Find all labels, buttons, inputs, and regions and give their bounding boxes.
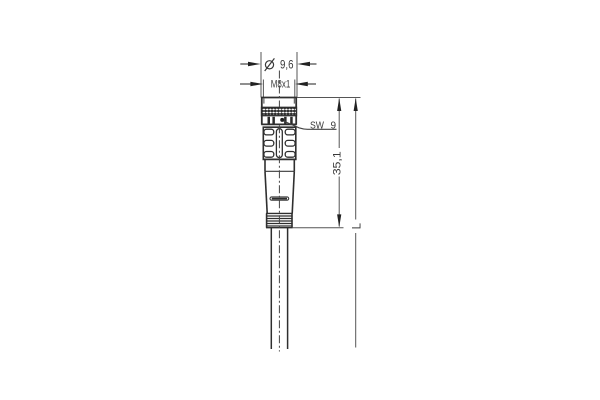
svg-text:35,1: 35,1 xyxy=(332,151,344,175)
svg-text:M8x1: M8x1 xyxy=(271,78,291,90)
svg-text:9: 9 xyxy=(331,120,337,131)
svg-text:9,6: 9,6 xyxy=(280,59,294,71)
svg-text:L: L xyxy=(351,222,363,229)
svg-text:SW: SW xyxy=(310,120,324,131)
